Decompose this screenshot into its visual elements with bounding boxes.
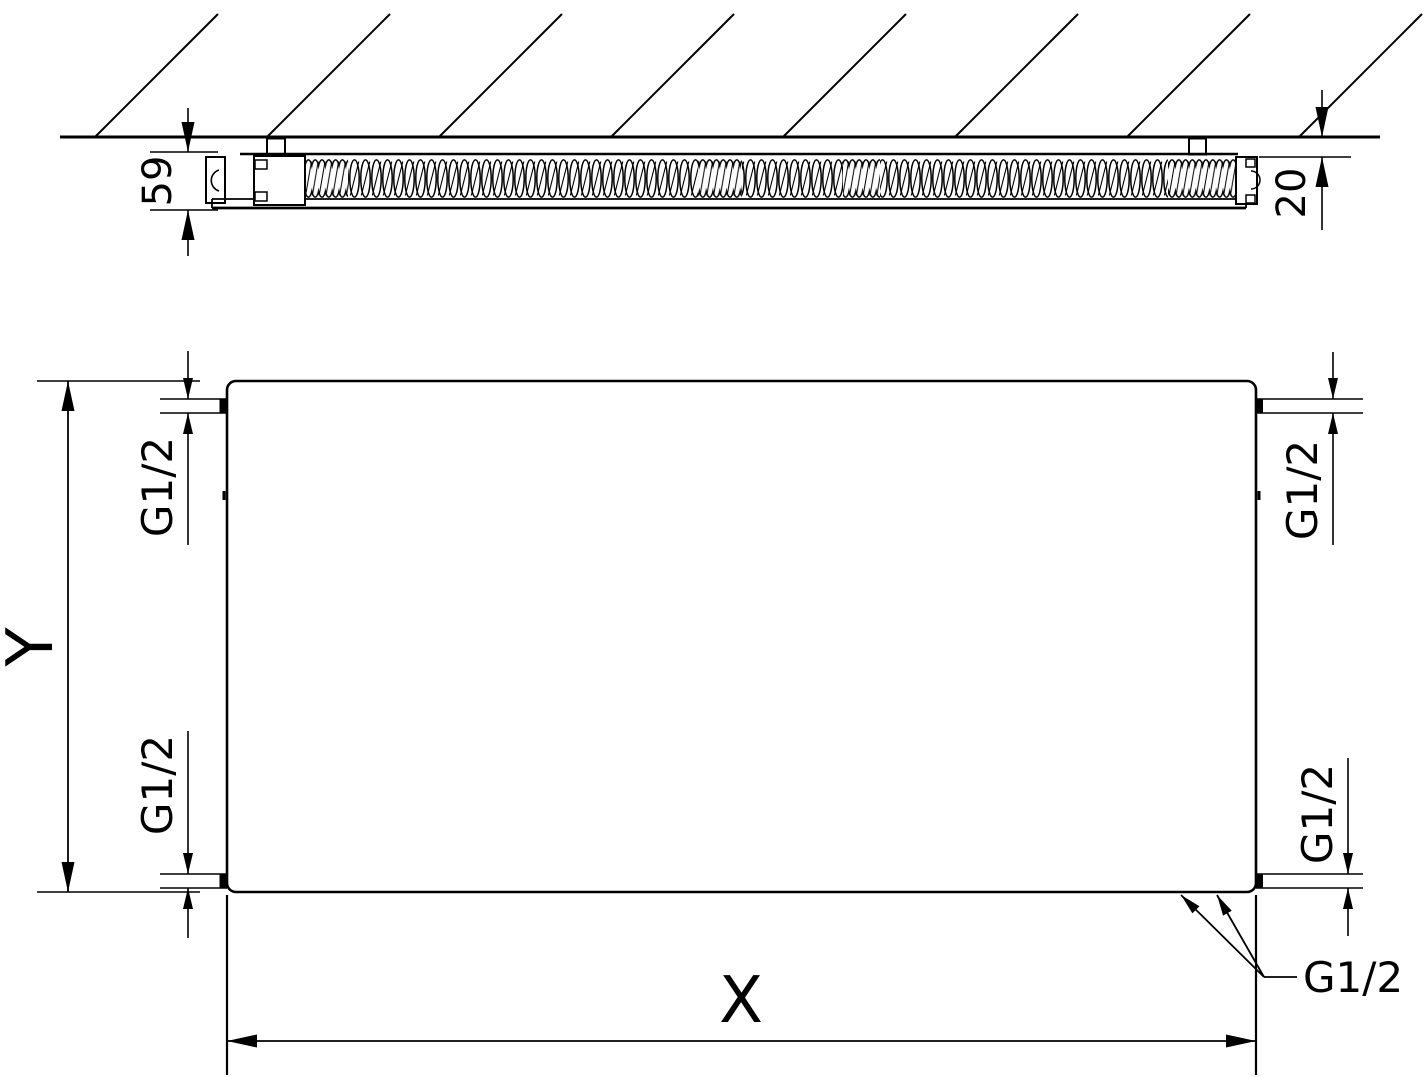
thread-label-bottom-connections: G1/2: [1303, 953, 1403, 1002]
wall-hatching: [95, 14, 1422, 137]
mounting-bracket-left: [267, 139, 285, 155]
connection-stub-bottom-left: [160, 874, 227, 888]
convector-fins: [305, 159, 1236, 198]
connection-stub-top-left: [160, 399, 227, 413]
thread-label-bottom-right: G1/2: [1293, 764, 1342, 864]
depth-dimension-label: 59: [135, 156, 181, 207]
mounting-bracket-right: [1189, 139, 1206, 155]
bottom-connections-leader: G1/2: [1181, 895, 1403, 1002]
drawing-canvas: 59 20: [0, 0, 1425, 1077]
thread-dimension-top-right: G1/2: [1278, 352, 1333, 545]
mounting-brackets: [267, 139, 1206, 155]
thread-label-bottom-left: G1/2: [133, 735, 182, 835]
connection-stub-top-right: [1256, 399, 1363, 413]
thread-label-top-right: G1/2: [1278, 440, 1327, 540]
thread-dimension-bottom-left: G1/2: [133, 731, 188, 938]
wall-clearance-dimension: 20: [1259, 90, 1351, 230]
front-view: G1/2 G1/2 G1/2 G1/2 Y X: [0, 351, 1403, 1075]
width-dimension: X: [227, 895, 1256, 1075]
radiator-front-panel: [227, 381, 1256, 892]
connection-stub-bottom-right: [1256, 874, 1363, 888]
section-left-end-cap: [254, 156, 305, 205]
section-right-end-cap: [1236, 157, 1260, 204]
radiator-cross-section: [206, 154, 1260, 208]
section-left-plug: [206, 157, 225, 203]
section-view: 59 20: [60, 14, 1422, 256]
height-dimension-label: Y: [0, 627, 68, 668]
width-dimension-label: X: [719, 964, 763, 1038]
thread-label-top-left: G1/2: [133, 437, 182, 537]
thread-dimension-top-left: G1/2: [133, 351, 188, 545]
radiator-technical-drawing: 59 20: [0, 0, 1425, 1077]
wall-clearance-label: 20: [1269, 168, 1315, 219]
thread-dimension-bottom-right: G1/2: [1293, 758, 1348, 936]
